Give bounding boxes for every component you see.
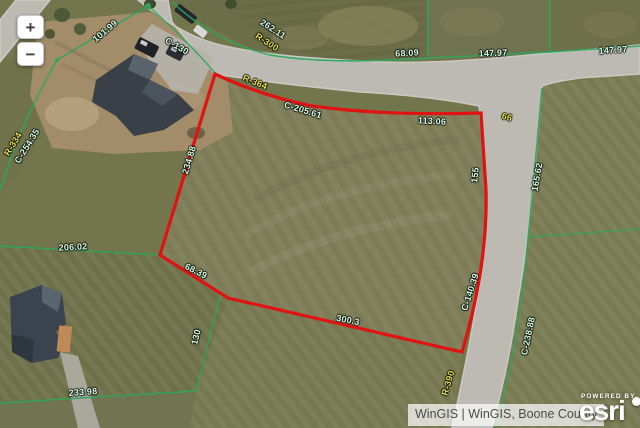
map-viewport[interactable]: 101.99C-130262.11R-30068.09147.97147.97R… [0,0,640,428]
map-canvas[interactable] [0,0,640,428]
esri-globe-icon [632,397,640,406]
zoom-out-button[interactable]: − [17,42,44,66]
zoom-in-button[interactable]: + [17,15,44,39]
attribution-bar: WinGIS | WinGIS, Boone County [408,404,604,426]
esri-logo: POWERED BY esri [579,393,637,422]
zoom-control: + − [17,15,44,66]
esri-brand-text: esri [579,400,637,422]
